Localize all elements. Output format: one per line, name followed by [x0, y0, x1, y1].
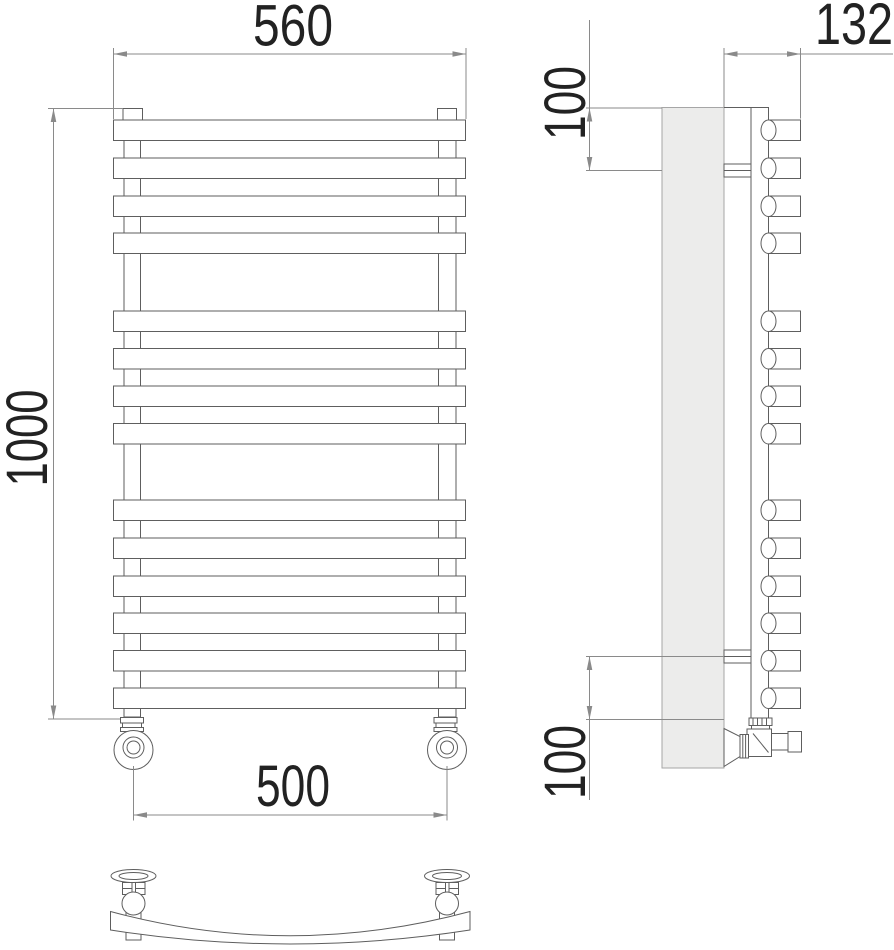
towel-bar: [114, 120, 466, 141]
arrow-down: [587, 157, 593, 171]
side-bar-end-cap: [761, 688, 776, 709]
side-bar-end-cap: [761, 651, 776, 672]
front-view: 560 1000 500: [0, 0, 467, 821]
dimension-height: 1000: [0, 109, 123, 720]
valve-pipe: [772, 734, 789, 751]
arrow-right: [453, 51, 467, 57]
towel-bar: [114, 538, 466, 559]
towel-bar: [114, 386, 466, 407]
curved-rail-plan: [111, 912, 471, 945]
towel-bar: [114, 196, 466, 217]
arrow-down: [587, 706, 593, 720]
side-bar-end-cap: [761, 576, 776, 597]
side-bar-end-cap: [761, 538, 776, 559]
towel-bar: [114, 651, 466, 672]
arrow-down: [51, 706, 57, 720]
side-bar-end-cap: [761, 349, 776, 370]
side-bar-end-cap: [761, 233, 776, 254]
dimension-depth: 132: [724, 0, 893, 119]
knurl-ring: [740, 735, 749, 759]
side-bar-end-cap: [761, 158, 776, 179]
arrow-right: [787, 51, 801, 57]
front-valve-left: [114, 718, 153, 770]
wall-panel: [662, 108, 724, 769]
side-valve: [724, 718, 802, 767]
arrow-up: [587, 657, 593, 671]
towel-bar: [114, 500, 466, 521]
towel-bars: [114, 120, 466, 709]
towel-bar: [114, 349, 466, 370]
dimension-offset-top: 100: [533, 20, 662, 171]
dim-width-top-label: 560: [253, 0, 333, 59]
side-bar-end-cap: [761, 311, 776, 332]
dim-valve-spacing-label: 500: [256, 754, 330, 819]
side-bar-end-cap: [761, 613, 776, 634]
collar: [752, 726, 770, 730]
front-left-tube-cap: [123, 109, 143, 121]
union-nut: [749, 718, 772, 726]
side-bar-end-cap: [761, 424, 776, 445]
towel-bar: [114, 576, 466, 597]
bottom-view: [111, 870, 471, 945]
towel-bar: [114, 613, 466, 634]
side-view: 132 100 100: [533, 0, 893, 800]
technical-drawing: 560 1000 500: [0, 0, 894, 950]
side-bar-end-cap: [761, 386, 776, 407]
towel-bar: [114, 311, 466, 332]
towel-bar: [114, 233, 466, 254]
mounting-bracket-bottom: [724, 650, 751, 663]
dim-height-label: 1000: [0, 390, 60, 487]
side-bar-end-cap: [761, 196, 776, 217]
dim-depth-label: 132: [815, 0, 893, 57]
dim-offset-top-label: 100: [533, 66, 598, 140]
drawing-canvas: 560 1000 500: [0, 0, 894, 950]
dimension-width-top: 560: [114, 0, 467, 119]
pipe-cap: [788, 732, 802, 753]
front-right-tube-cap: [438, 109, 457, 121]
mounting-bracket-top: [724, 164, 751, 177]
towel-bar: [114, 424, 466, 445]
side-bar-end-cap: [761, 120, 776, 141]
arrow-left: [724, 51, 738, 57]
arrow-up: [51, 109, 57, 123]
arrow-right: [434, 812, 448, 818]
arrow-left: [114, 51, 128, 57]
arrow-left: [134, 812, 148, 818]
dim-offset-bottom-label: 100: [533, 725, 598, 799]
towel-bar: [114, 158, 466, 179]
towel-bar: [114, 688, 466, 709]
front-valve-right: [428, 718, 467, 770]
dimension-valve-spacing: 500: [134, 754, 448, 821]
side-bar-end-cap: [761, 500, 776, 521]
wall-flange: [724, 729, 740, 767]
